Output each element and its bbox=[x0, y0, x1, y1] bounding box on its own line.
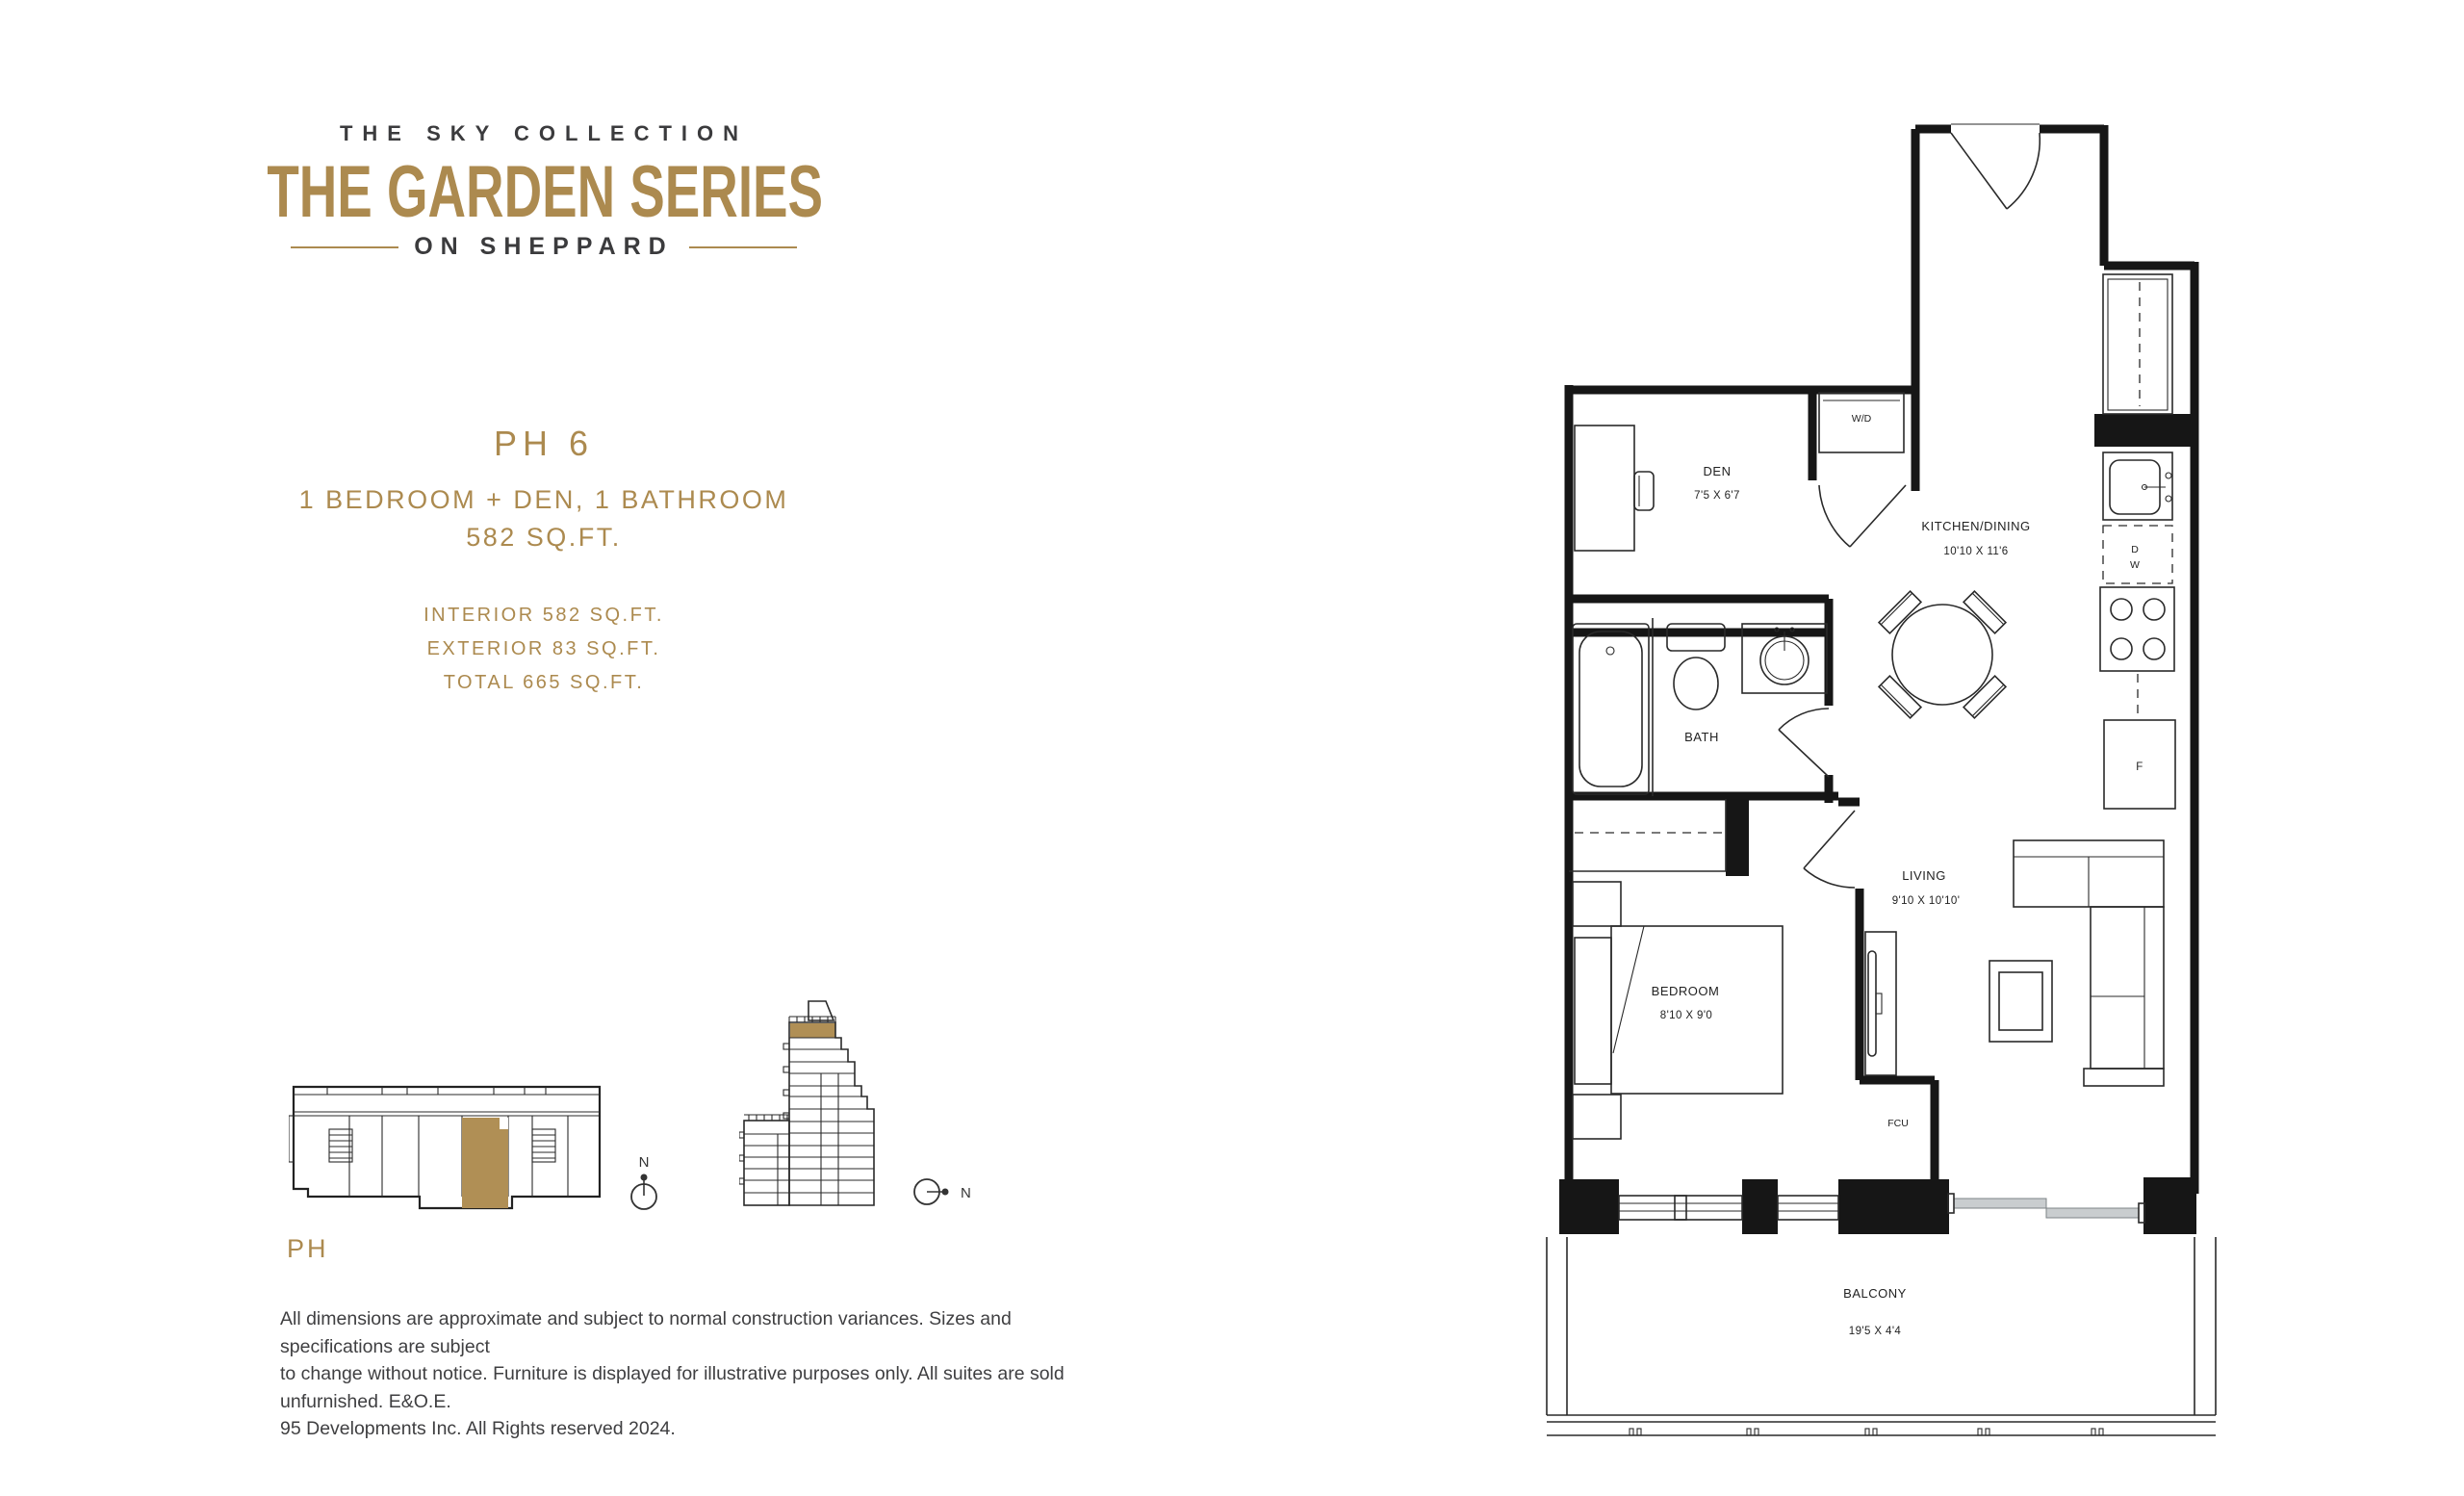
keyplan-highlighted-unit bbox=[462, 1118, 508, 1208]
tagline-text: ON SHEPPARD bbox=[414, 233, 674, 261]
compass-n-label-2: N bbox=[961, 1185, 971, 1201]
exterior-area: EXTERIOR 83 SQ.FT. bbox=[159, 632, 929, 666]
dining-table bbox=[1879, 591, 2006, 718]
den-label: DEN bbox=[1704, 464, 1732, 478]
balcony-label: BALCONY bbox=[1843, 1286, 1907, 1301]
tagline-row: ON SHEPPARD bbox=[159, 233, 929, 261]
dishwasher-label-w: W bbox=[2130, 559, 2140, 571]
disclaimer-line-2: to change without notice. Furniture is d… bbox=[280, 1360, 1127, 1415]
balcony-dims: 19'5 X 4'4 bbox=[1849, 1326, 1902, 1337]
compass-north-icon: N bbox=[624, 1151, 666, 1217]
tagline-rule-left bbox=[291, 246, 398, 248]
bedroom-window-1 bbox=[1619, 1196, 1742, 1220]
bedroom-closet bbox=[1569, 799, 1726, 871]
tagline-rule-right bbox=[689, 246, 797, 248]
disclaimer-text: All dimensions are approximate and subje… bbox=[280, 1305, 1127, 1443]
unit-floorplan: D W F bbox=[1521, 87, 2233, 1446]
keyplan-floor-label: PH bbox=[287, 1234, 329, 1264]
fridge: F bbox=[2104, 720, 2175, 809]
unit-type: 1 BEDROOM + DEN, 1 BATHROOM bbox=[159, 485, 929, 515]
bath-door bbox=[1779, 709, 1829, 777]
keyplan-diagram bbox=[289, 1073, 616, 1266]
total-area: TOTAL 665 SQ.FT. bbox=[159, 666, 929, 700]
kitchen-dims: 10'10 X 11'6 bbox=[1943, 546, 2008, 557]
keyplan-stair-cores bbox=[329, 1129, 555, 1162]
washer-dryer-label: W/D bbox=[1852, 413, 1872, 425]
brand-block: THE SKY COLLECTION THE GARDEN SERIES ON … bbox=[159, 121, 929, 261]
dishwasher-label-d: D bbox=[2131, 544, 2139, 555]
fridge-label: F bbox=[2136, 761, 2143, 773]
building-elevation-diagram bbox=[739, 988, 951, 1262]
kitchen-label: KITCHEN/DINING bbox=[1921, 519, 2030, 533]
den-door bbox=[1819, 485, 1906, 547]
bathtub bbox=[1573, 618, 1653, 796]
living-label: LIVING bbox=[1902, 868, 1946, 883]
entry-door bbox=[1951, 133, 2040, 209]
bedroom-window-2 bbox=[1778, 1196, 1838, 1220]
den-desk bbox=[1575, 426, 1654, 551]
elevation-podium bbox=[739, 1115, 789, 1205]
unit-heading-block: PH 6 1 BEDROOM + DEN, 1 BATHROOM 582 SQ.… bbox=[159, 424, 929, 553]
bedroom-dims: 8'10 X 9'0 bbox=[1660, 1010, 1712, 1021]
collection-title: THE SKY COLLECTION bbox=[159, 121, 929, 146]
dishwasher: D W bbox=[2103, 526, 2172, 583]
disclaimer-line-1: All dimensions are approximate and subje… bbox=[280, 1305, 1127, 1360]
floorplan-brochure-page: THE SKY COLLECTION THE GARDEN SERIES ON … bbox=[0, 0, 2464, 1496]
disclaimer-line-3: 95 Developments Inc. All Rights reserved… bbox=[280, 1415, 1127, 1443]
bedroom-label: BEDROOM bbox=[1652, 984, 1720, 998]
fcu-label: FCU bbox=[1887, 1118, 1909, 1129]
compass-north-icon-2: N bbox=[903, 1171, 989, 1213]
sofa bbox=[2014, 840, 2164, 1086]
bath-label: BATH bbox=[1684, 730, 1719, 744]
interior-area: INTERIOR 582 SQ.FT. bbox=[159, 599, 929, 632]
bedroom-door bbox=[1804, 811, 1855, 888]
unit-name: PH 6 bbox=[159, 424, 929, 464]
tv-console bbox=[1865, 932, 1896, 1075]
elevation-tower bbox=[783, 1001, 874, 1205]
balcony-sliding-door bbox=[1948, 1194, 2144, 1223]
keyplan-outline bbox=[289, 1087, 600, 1208]
kitchen-sink bbox=[2103, 452, 2172, 520]
entry-closet bbox=[2103, 274, 2172, 414]
walls bbox=[1559, 124, 2196, 1234]
coffee-table bbox=[1989, 961, 2052, 1042]
cooktop bbox=[2100, 587, 2174, 671]
compass-n-label: N bbox=[639, 1154, 650, 1171]
living-dims: 9'10 X 10'10' bbox=[1892, 895, 1961, 907]
series-title: THE GARDEN SERIES bbox=[267, 154, 823, 231]
area-stats: INTERIOR 582 SQ.FT. EXTERIOR 83 SQ.FT. T… bbox=[159, 599, 929, 700]
unit-area: 582 SQ.FT. bbox=[159, 523, 929, 553]
den-dims: 7'5 X 6'7 bbox=[1694, 490, 1740, 502]
